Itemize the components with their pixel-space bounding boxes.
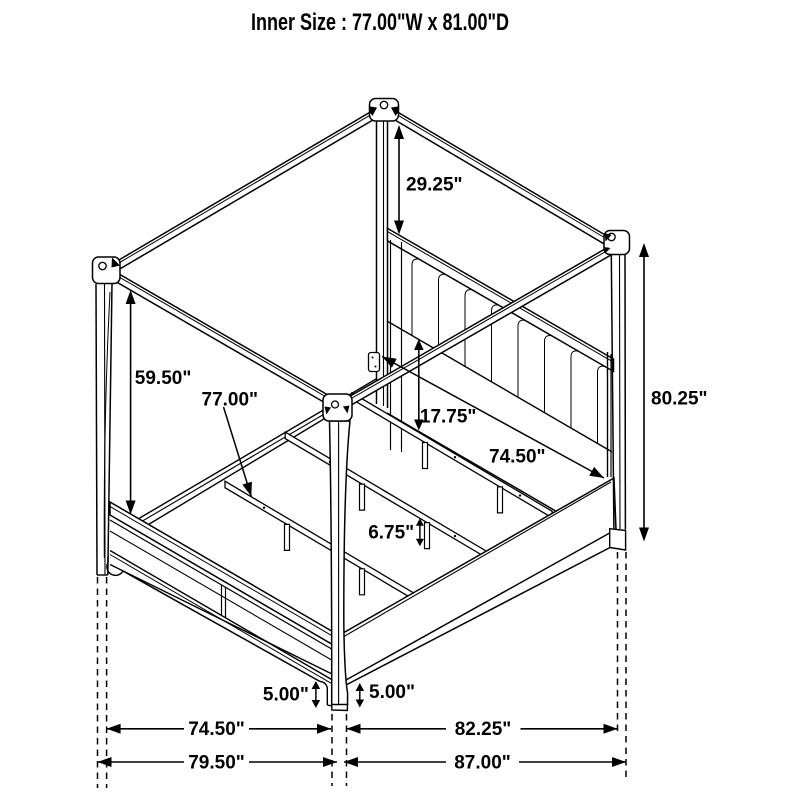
svg-text:77.00": 77.00" — [202, 390, 259, 411]
svg-text:Inner Size : 77.00"W x 81.00"D: Inner Size : 77.00"W x 81.00"D — [251, 10, 509, 36]
svg-text:74.50": 74.50" — [188, 719, 245, 740]
svg-text:80.25": 80.25" — [651, 389, 708, 410]
svg-text:6.75": 6.75" — [368, 523, 414, 544]
svg-text:17.75": 17.75" — [420, 406, 477, 427]
svg-text:5.00": 5.00" — [263, 685, 309, 706]
svg-text:82.25": 82.25" — [455, 719, 512, 740]
svg-text:87.00": 87.00" — [454, 753, 511, 774]
svg-text:79.50": 79.50" — [188, 753, 245, 774]
svg-text:29.25": 29.25" — [406, 175, 463, 196]
svg-text:74.50": 74.50" — [489, 446, 546, 467]
svg-text:5.00": 5.00" — [369, 682, 415, 703]
svg-text:59.50": 59.50" — [135, 368, 192, 389]
